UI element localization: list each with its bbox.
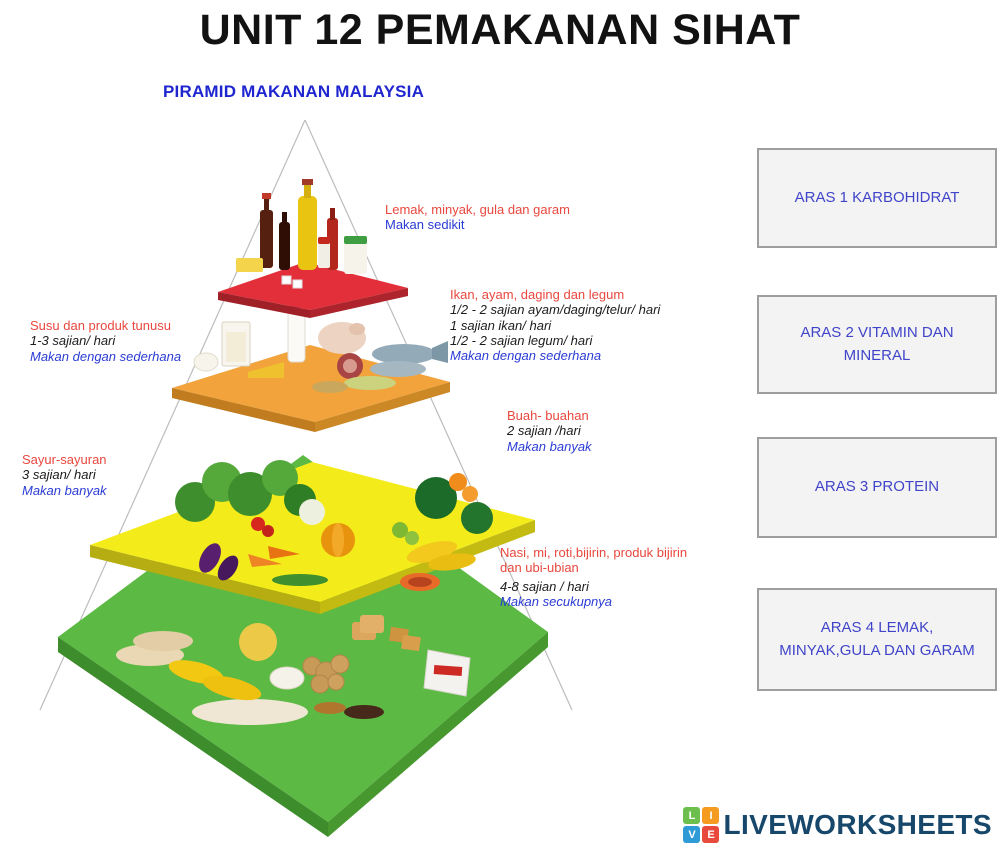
level-advice: Makan sedikit: [385, 217, 625, 232]
pyramid-label-meat-fish-legumes: Ikan, ayam, daging dan legum 1/2 - 2 saj…: [450, 287, 710, 364]
level-advice: Makan secukupnya: [500, 594, 695, 609]
level-title: Lemak, minyak, gula dan garam: [385, 202, 625, 217]
pyramid-label-dairy: Susu dan produk tunusu 1-3 sajian/ hari …: [30, 318, 250, 364]
level-advice: Makan banyak: [22, 483, 192, 498]
logo-square-i: I: [702, 807, 719, 824]
level-title: Buah- buahan: [507, 408, 687, 423]
pyramid-label-grains: Nasi, mi, roti,bijirin, produk bijirin d…: [500, 545, 695, 609]
level-serving: 2 sajian /hari: [507, 423, 687, 438]
liveworksheets-logo-icon: L I V E: [683, 807, 719, 843]
level-serving: 3 sajian/ hari: [22, 467, 192, 482]
level-serving: 1/2 - 2 sajian ayam/daging/telur/ hari: [450, 302, 710, 317]
liveworksheets-logo-text: LIVEWORKSHEETS: [723, 809, 992, 841]
logo-square-l: L: [683, 807, 700, 824]
answer-box-aras-3-protein[interactable]: ARAS 3 PROTEIN: [757, 437, 997, 538]
level-serving: 1/2 - 2 sajian legum/ hari: [450, 333, 710, 348]
answer-box-aras-1-karbohidrat[interactable]: ARAS 1 KARBOHIDRAT: [757, 148, 997, 248]
answer-box-aras-4-lemak[interactable]: ARAS 4 LEMAK, MINYAK,GULA DAN GARAM: [757, 588, 997, 691]
level-serving: 1 sajian ikan/ hari: [450, 318, 710, 333]
level-advice: Makan banyak: [507, 439, 687, 454]
answer-box-aras-2-vitamin-mineral[interactable]: ARAS 2 VITAMIN DAN MINERAL: [757, 295, 997, 394]
level-title: Ikan, ayam, daging dan legum: [450, 287, 710, 302]
level-serving: 1-3 sajian/ hari: [30, 333, 250, 348]
level-title: Nasi, mi, roti,bijirin, produk bijirin d…: [500, 545, 695, 576]
worksheet-page: UNIT 12 PEMAKANAN SIHAT PIRAMID MAKANAN …: [0, 0, 1000, 848]
pyramid-label-fats: Lemak, minyak, gula dan garam Makan sedi…: [385, 202, 625, 233]
level-title: Sayur-sayuran: [22, 452, 192, 467]
pyramid-label-vegetables: Sayur-sayuran 3 sajian/ hari Makan banya…: [22, 452, 192, 498]
level-title: Susu dan produk tunusu: [30, 318, 250, 333]
level-advice: Makan dengan sederhana: [450, 348, 710, 363]
pyramid-heading: PIRAMID MAKANAN MALAYSIA: [163, 82, 424, 102]
level-advice: Makan dengan sederhana: [30, 349, 250, 364]
level-serving: 4-8 sajian / hari: [500, 579, 695, 594]
logo-square-v: V: [683, 826, 700, 843]
liveworksheets-logo: L I V E LIVEWORKSHEETS: [683, 807, 992, 843]
pyramid-label-fruits: Buah- buahan 2 sajian /hari Makan banyak: [507, 408, 687, 454]
logo-square-e: E: [702, 826, 719, 843]
page-title: UNIT 12 PEMAKANAN SIHAT: [0, 6, 1000, 55]
